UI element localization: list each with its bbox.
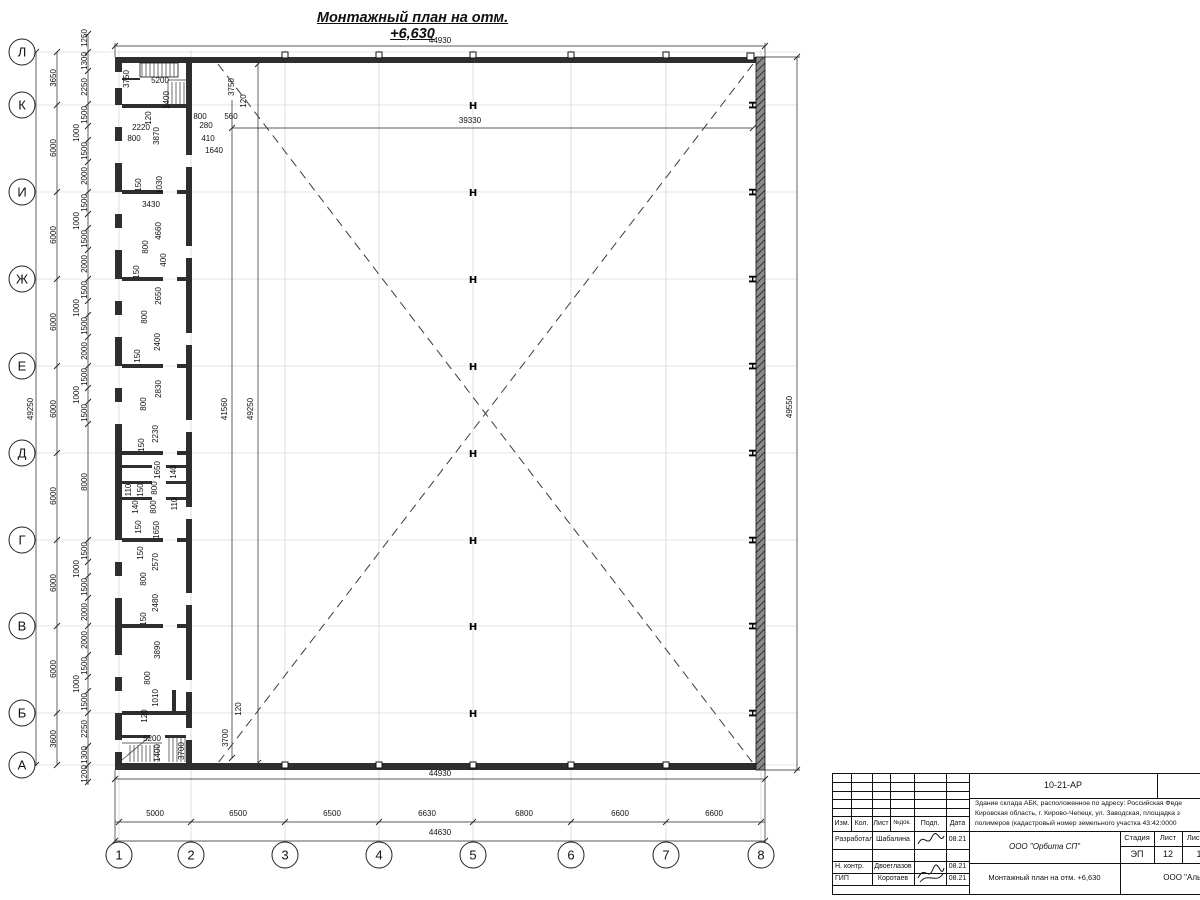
dim-label: 6000	[49, 226, 58, 244]
grid-lines	[36, 50, 797, 842]
tb-date-developer: 08.21	[946, 831, 969, 849]
steel-column-symbol: H	[469, 622, 477, 633]
dim-label: 1000	[72, 560, 81, 578]
dim-label: 800	[143, 671, 152, 685]
dim-label: 1400	[162, 91, 171, 109]
dim-label: 6500	[323, 809, 341, 818]
dim-label: 1500	[80, 542, 89, 560]
dim-label: 150	[133, 349, 142, 363]
steel-column-symbol: H	[469, 188, 477, 199]
axis-label-Е: Е	[18, 359, 27, 374]
wall-column-symbol: H	[746, 362, 757, 370]
dim-label: 1500	[80, 106, 89, 124]
dim-label: 1000	[72, 386, 81, 404]
tb-col-izm: Изм.	[833, 816, 851, 831]
dim-label: 5000	[146, 809, 164, 818]
axis-label-Б: Б	[18, 706, 27, 721]
dim-label: 6600	[611, 809, 629, 818]
tb-col-ndok: №док.	[890, 816, 914, 831]
axis-label-8: 8	[757, 848, 764, 863]
dim-label: 1200	[80, 765, 89, 783]
signature-icon	[916, 830, 946, 852]
dim-label: 2000	[80, 167, 89, 185]
dim-label: 1000	[72, 675, 81, 693]
dim-label: 1500	[80, 578, 89, 596]
tb-drawing-name: Монтажный план на отм. +6,630	[969, 863, 1120, 894]
tb-sheets-label: Листов	[1182, 831, 1200, 846]
dim-label: 800	[139, 397, 148, 411]
dim-label: 150	[136, 483, 145, 497]
axis-label-Д: Д	[18, 446, 27, 461]
corridor-wall	[186, 63, 192, 763]
wall-column-symbol: H	[746, 188, 757, 196]
left-wall-piers	[115, 57, 122, 765]
dim-label: 49250	[26, 397, 35, 420]
axis-label-К: К	[18, 98, 26, 113]
dim-label: 1300	[80, 52, 89, 70]
tb-role-ncontr: Н. контр.	[833, 861, 874, 873]
dim-label: 1500	[80, 281, 89, 299]
dim-label: 150	[134, 178, 143, 192]
dim-label: 2480	[151, 594, 160, 612]
axis-label-В: В	[18, 619, 27, 634]
dim-label: 5200	[151, 76, 169, 85]
dim-label: 800	[141, 240, 150, 254]
steel-column-symbol: H	[469, 275, 477, 286]
dim-label: 1500	[80, 142, 89, 160]
dim-label: 140	[169, 465, 178, 479]
dim-label: 2400	[153, 333, 162, 351]
column-symbols: HHHHHHHHHHHHHHHH	[469, 101, 757, 720]
dim-label: 1500	[80, 404, 89, 422]
axis-label-А: А	[18, 758, 27, 773]
tb-sheet-value: 12	[1154, 846, 1182, 863]
dim-label: 3870	[152, 127, 161, 145]
right-wall	[756, 57, 765, 770]
dim-label: 800	[140, 310, 149, 324]
dim-label: 49550	[785, 395, 794, 418]
axis-label-1: 1	[115, 848, 122, 863]
dim-label: 1030	[155, 176, 164, 194]
dim-label: 49250	[246, 397, 255, 420]
dim-label: 150	[139, 612, 148, 626]
dim-label: 1500	[80, 368, 89, 386]
axis-label-4: 4	[375, 848, 382, 863]
steel-column-symbol: H	[469, 362, 477, 373]
dim-label: 120	[140, 709, 149, 723]
dim-label: 110	[170, 497, 179, 510]
axis-label-3: 3	[281, 848, 288, 863]
tb-company: ООО "Орбита СП"	[969, 831, 1120, 863]
tb-date-ncontr: 08.21	[946, 861, 969, 873]
axis-label-Ж: Ж	[16, 272, 28, 287]
dim-label: 3750	[227, 78, 236, 96]
dim-label: 3600	[49, 730, 58, 748]
dim-label: 39330	[459, 116, 482, 125]
dim-label: 1000	[72, 212, 81, 230]
dim-label: 2000	[80, 255, 89, 273]
tb-sheet-label: Лист	[1154, 831, 1182, 846]
dim-label: 400	[159, 253, 168, 267]
tb-address-line2: Кировская область, г. Кирово-Чепецк, ул.…	[975, 809, 1200, 819]
dim-label: 6500	[229, 809, 247, 818]
tb-date-gip: 08.21	[946, 873, 969, 885]
dim-label: 6000	[49, 139, 58, 157]
dim-label: 3650	[49, 69, 58, 87]
dim-label: 5200	[143, 734, 161, 743]
dim-label: 800	[149, 500, 158, 514]
tb-name-ncontr: Двоеглазов	[872, 861, 914, 873]
tb-org: ООО "Альянс"	[1120, 863, 1200, 894]
tb-address-line3: полимеров (кадастровый номер земельного …	[975, 819, 1200, 829]
tb-role-developer: Разработал	[833, 831, 874, 849]
dim-label: 1640	[205, 146, 223, 155]
tb-col-data: Дата	[946, 816, 969, 831]
room-partitions	[122, 78, 186, 738]
axis-label-И: И	[17, 185, 26, 200]
dim-label: 6000	[49, 660, 58, 678]
dim-label: 41560	[220, 397, 229, 420]
dim-label: 1500	[80, 194, 89, 212]
dim-label: 410	[201, 134, 215, 143]
dim-label: 2570	[151, 553, 160, 571]
dim-label: 800	[150, 481, 159, 495]
dim-label: 1300	[80, 746, 89, 764]
tb-project-address: Здание склада АБК, расположенное по адре…	[975, 799, 1200, 829]
dim-label: 3430	[142, 200, 160, 209]
dim-label: 120	[239, 94, 248, 108]
wall-column-tabs	[282, 52, 754, 768]
tb-stage-label: Стадия	[1120, 831, 1154, 846]
dim-label: 1400	[153, 744, 162, 762]
dim-label: 6800	[515, 809, 533, 818]
wall-column-symbol: H	[746, 709, 757, 717]
dim-label: 2220	[132, 123, 150, 132]
signature-icon	[916, 860, 946, 888]
title-block: Изм. Кол. Лист №док. Подп. Дата Разработ…	[832, 773, 1200, 895]
dim-label: 110	[124, 483, 133, 496]
tb-sheets-value: 1	[1182, 846, 1200, 863]
building-walls	[115, 52, 765, 770]
dim-label: 2250	[80, 78, 89, 96]
wall-column-symbol: H	[746, 536, 757, 544]
dim-label: 1650	[152, 521, 161, 539]
axis-label-5: 5	[469, 848, 476, 863]
dim-label: 2000	[80, 631, 89, 649]
dim-label: 1500	[80, 317, 89, 335]
tb-col-kol: Кол.	[851, 816, 872, 831]
dim-label: 1500	[80, 657, 89, 675]
roof-bracing-x	[218, 64, 753, 763]
dim-label: 2000	[80, 342, 89, 360]
dim-label: 3700	[177, 742, 186, 760]
dim-label: 8000	[80, 473, 89, 491]
tb-stage-value: ЭП	[1120, 846, 1154, 863]
dim-label: 6000	[49, 487, 58, 505]
tb-role-gip: ГИП	[833, 873, 874, 885]
dim-label: 2830	[154, 380, 163, 398]
tb-doc-number: 10-21-АР	[969, 774, 1157, 798]
tb-name-developer: Шабалина	[872, 831, 914, 849]
dim-label: 150	[132, 265, 141, 279]
dim-label: 280	[199, 121, 213, 130]
axis-label-7: 7	[662, 848, 669, 863]
wall-column-symbol: H	[746, 449, 757, 457]
drawing-title: Монтажный план на отм. +6,630	[295, 10, 530, 42]
dim-label: 150	[134, 520, 143, 534]
dim-label: 800	[139, 572, 148, 586]
dim-label: 1000	[72, 124, 81, 142]
dim-label: 560	[224, 112, 238, 121]
wall-column-symbol: H	[746, 275, 757, 283]
steel-column-symbol: H	[469, 536, 477, 547]
dim-label: 3890	[153, 641, 162, 659]
dim-label: 800	[193, 112, 207, 121]
wall-column-symbol: H	[746, 622, 757, 630]
dim-label: 3700	[221, 729, 230, 747]
dim-label: 1500	[80, 230, 89, 248]
axis-label-Л: Л	[18, 45, 27, 60]
dim-label: 1500	[80, 693, 89, 711]
dim-label: 2250	[80, 720, 89, 738]
floor-plan-drawing: 4493037505200140012080028056022208003870…	[0, 0, 1200, 900]
tb-name-gip: Коротаев	[872, 873, 914, 885]
dim-label: 44630	[429, 828, 452, 837]
steel-column-symbol: H	[469, 709, 477, 720]
dim-label: 6000	[49, 313, 58, 331]
tb-address-line1: Здание склада АБК, расположенное по адре…	[975, 799, 1200, 809]
steel-column-symbol: H	[469, 449, 477, 460]
dim-label: 3750	[122, 70, 131, 88]
tb-col-list: Лист	[872, 816, 890, 831]
dim-label: 2000	[80, 603, 89, 621]
dim-label: 1010	[151, 689, 160, 707]
dimension-labels: 4493037505200140012080028056022208003870…	[26, 29, 794, 837]
dim-label: 800	[127, 134, 141, 143]
dim-label: 6630	[418, 809, 436, 818]
dim-label: 150	[137, 438, 146, 452]
dim-label: 6000	[49, 574, 58, 592]
dim-label: 1250	[80, 29, 89, 47]
dim-label: 120	[234, 702, 243, 716]
axis-label-2: 2	[187, 848, 194, 863]
dim-label: 1000	[72, 299, 81, 317]
dim-label: 44930	[429, 769, 452, 778]
dim-label: 1650	[153, 461, 162, 479]
dim-label: 6600	[705, 809, 723, 818]
axis-label-6: 6	[567, 848, 574, 863]
dim-label: 2650	[154, 287, 163, 305]
dim-label: 4660	[154, 222, 163, 240]
dim-label: 140	[131, 500, 140, 514]
dim-label: 2230	[151, 425, 160, 443]
wall-column-symbol: H	[746, 101, 757, 109]
dim-label: 150	[136, 546, 145, 560]
axis-label-Г: Г	[18, 533, 25, 548]
steel-column-symbol: H	[469, 101, 477, 112]
dim-label: 6000	[49, 400, 58, 418]
tb-col-podp: Подп.	[914, 816, 946, 831]
